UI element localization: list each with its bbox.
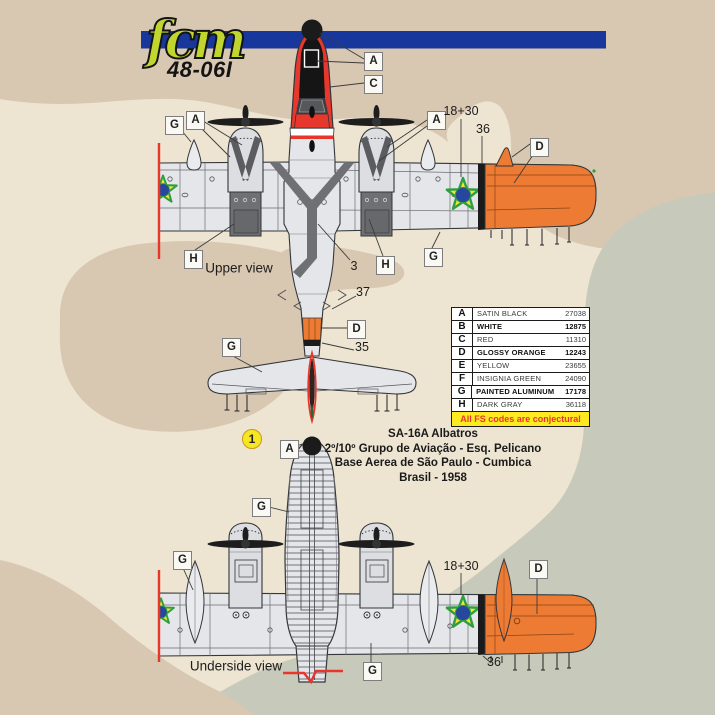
callout-a-11: A	[280, 440, 299, 459]
fs-color-name: SATIN BLACK	[473, 308, 553, 320]
callout-d-5: D	[530, 138, 549, 157]
fs-color-name: GLOSSY ORANGE	[473, 347, 553, 359]
fs-number: 27038	[553, 308, 589, 320]
fs-color-name: YELLOW	[473, 360, 553, 372]
stencil-number-0: 18+30	[443, 104, 478, 118]
upper-right-wing	[334, 148, 596, 245]
fs-row-e: EYELLOW23655	[452, 360, 589, 373]
fs-code: E	[452, 360, 473, 372]
fs-row-g: GPAINTED ALUMINUM17178	[452, 386, 589, 399]
fs-color-table: ASATIN BLACK27038BWHITE12875CRED11310DGL…	[451, 307, 590, 427]
fs-code: A	[452, 308, 473, 320]
upper-view-caption: Upper view	[205, 261, 273, 276]
callout-h-7: H	[376, 256, 395, 275]
tail-fin	[308, 353, 316, 421]
walkway	[270, 163, 354, 278]
under-left-float	[186, 561, 204, 643]
fs-row-c: CRED11310	[452, 334, 589, 347]
fs-code: H	[452, 399, 473, 411]
fs-color-name: WHITE	[473, 321, 553, 333]
fs-number: 11310	[553, 334, 589, 346]
under-nose-cap	[303, 437, 322, 456]
callout-g-2: G	[165, 116, 184, 135]
static-dischargers	[491, 227, 571, 245]
stencil-number-6: 36	[487, 655, 501, 669]
fs-number: 12875	[553, 321, 589, 333]
fs-number: 17178	[554, 386, 589, 398]
stencil-number-3: 37	[356, 285, 370, 299]
stencil-number-1: 36	[476, 122, 490, 136]
callout-g-12: G	[252, 498, 271, 517]
left-propeller	[208, 105, 284, 127]
upper-wing-black-band	[478, 164, 485, 231]
fs-number: 36118	[553, 399, 589, 411]
nose-cap	[302, 20, 323, 41]
left-nacelle	[228, 128, 263, 236]
under-orange-wingtip	[485, 595, 596, 655]
callout-h-6: H	[184, 250, 203, 269]
under-black-band	[478, 595, 485, 656]
fs-row-f: FINSIGNIA GREEN24090	[452, 373, 589, 386]
fs-code: G	[452, 386, 472, 398]
subject-line-2: 2º/10º Grupo de Aviação - Esq. Pelicano	[325, 442, 542, 457]
red-stripe	[291, 136, 334, 139]
fs-color-name: PAINTED ALUMINUM	[472, 386, 554, 398]
callout-c-1: C	[364, 75, 383, 94]
fs-number: 24090	[553, 373, 589, 385]
under-right-propeller	[339, 527, 415, 549]
stencil-number-5: 18+30	[443, 559, 478, 573]
callout-g-13: G	[173, 551, 192, 570]
rear-black-band	[304, 340, 321, 346]
fs-code: F	[452, 373, 473, 385]
antiglare-panel	[299, 35, 325, 98]
rear-orange-band	[303, 318, 322, 340]
fs-number: 12243	[553, 347, 589, 359]
right-propeller	[339, 105, 415, 127]
camo-tan-top	[0, 0, 715, 250]
fs-code: C	[452, 334, 473, 346]
under-right-float	[420, 561, 438, 643]
callout-g-15: G	[363, 662, 382, 681]
underside-view-caption: Underside view	[190, 659, 282, 674]
camo-tan-middle	[60, 241, 319, 432]
upper-left-wing	[150, 162, 290, 231]
right-nacelle	[359, 128, 394, 236]
red-nose	[291, 20, 333, 129]
right-float-top	[421, 140, 435, 170]
subject-caption: SA-16A Albatros 2º/10º Grupo de Aviação …	[325, 427, 542, 485]
upper-fuselage	[284, 128, 340, 356]
fs-row-a: ASATIN BLACK27038	[452, 308, 589, 321]
white-band	[290, 128, 334, 136]
cockpit-roof	[295, 114, 330, 128]
upper-orange-wingtip	[485, 164, 596, 229]
fs-color-name: DARK GRAY	[473, 399, 553, 411]
decal-instruction-sheet: fcm 48-06I	[0, 0, 715, 715]
float-fin-orange	[496, 148, 513, 166]
fs-color-rows: ASATIN BLACK27038BWHITE12875CRED11310DGL…	[452, 308, 589, 412]
camo-tan-bottom-left	[0, 560, 255, 715]
fs-color-name: INSIGNIA GREEN	[473, 373, 553, 385]
windshield	[296, 98, 328, 114]
fs-footnote: All FS codes are conjectural	[452, 412, 589, 426]
callout-g-8: G	[424, 248, 443, 267]
callout-g-10: G	[222, 338, 241, 357]
callout-d-9: D	[347, 320, 366, 339]
subject-line-1: SA-16A Albatros	[325, 427, 542, 442]
callout-a-3: A	[186, 111, 205, 130]
callout-d-14: D	[529, 560, 548, 579]
tailplane	[208, 357, 416, 411]
under-orange-float	[496, 559, 512, 641]
scheme-number-badge: 1	[242, 429, 262, 449]
fs-code: B	[452, 321, 473, 333]
under-right-nacelle	[360, 523, 393, 618]
under-dischargers	[491, 653, 571, 670]
hull-cut-zigzag	[283, 671, 343, 682]
jack-arrows	[278, 290, 346, 310]
camo-background	[0, 0, 715, 715]
callout-a-0: A	[364, 52, 383, 71]
fs-row-h: HDARK GRAY36118	[452, 399, 589, 412]
subject-line-3: Base Aerea de São Paulo - Cumbica	[325, 456, 542, 471]
stencil-number-2: 3	[351, 259, 358, 273]
under-left-propeller	[208, 527, 284, 549]
subject-line-4: Brasil - 1958	[325, 471, 542, 486]
fs-number: 23655	[553, 360, 589, 372]
fs-row-d: DGLOSSY ORANGE12243	[452, 347, 589, 360]
product-code: 48-06I	[167, 57, 232, 83]
fs-row-b: BWHITE12875	[452, 321, 589, 334]
fs-code: D	[452, 347, 473, 359]
left-float-top	[187, 140, 201, 170]
stencil-number-4: 35	[355, 340, 369, 354]
under-left-nacelle	[229, 523, 262, 618]
fs-color-name: RED	[473, 334, 553, 346]
